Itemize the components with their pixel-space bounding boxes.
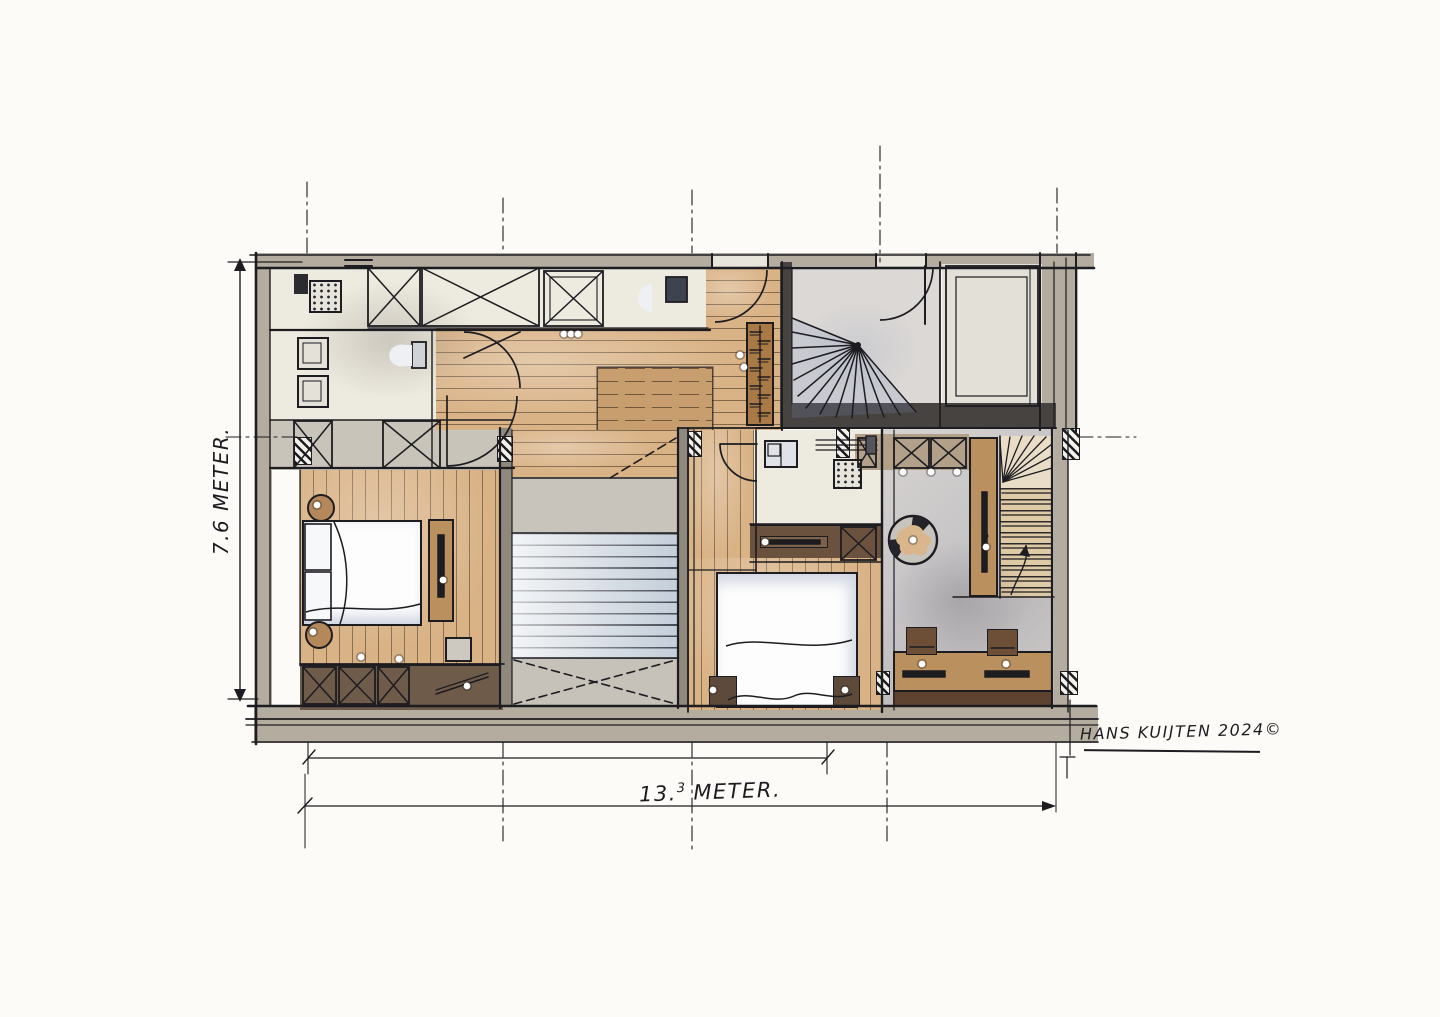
height-dimension-label: 7.6 METER. [209, 401, 235, 581]
width-dimension-unit: METER. [693, 778, 782, 805]
width-dimension-whole: 13. [639, 781, 678, 806]
width-dimension-sup: 3 [676, 781, 685, 796]
hall-cabinet-strokes [750, 326, 770, 422]
height-dimension-text: 7.6 METER. [209, 427, 233, 555]
toilet-fixtures [389, 277, 687, 368]
round-furniture [306, 495, 937, 648]
stair-right-ink [1000, 436, 1052, 595]
light-dots [308, 329, 1011, 695]
stair-winder-fan [792, 318, 916, 418]
closet-x-units [294, 268, 966, 704]
fixture-details [303, 343, 877, 466]
dimension-lines [228, 258, 1075, 848]
floor-plan-sheet: 7.6 METER. 13.3 METER. HANS KUIJTEN 2024… [0, 0, 1440, 1017]
